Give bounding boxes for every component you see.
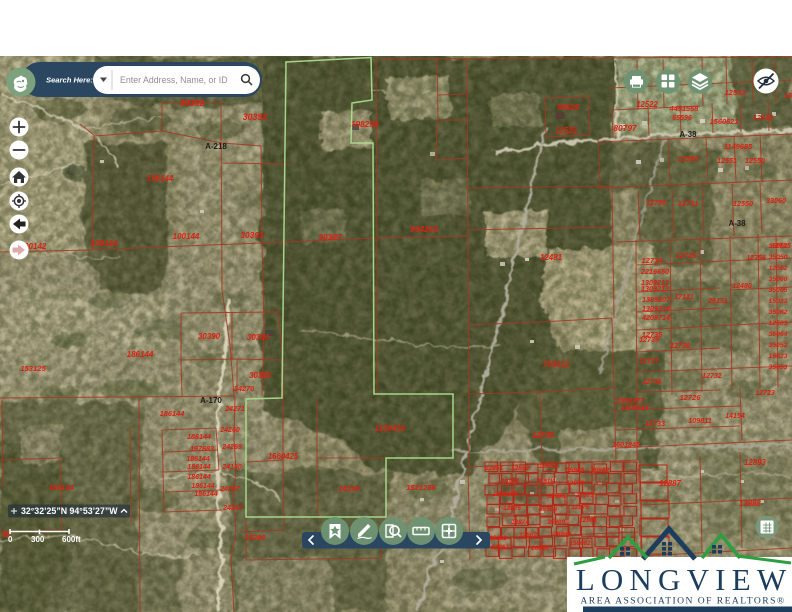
svg-text:25282: 25282 bbox=[488, 535, 507, 542]
svg-text:12861: 12861 bbox=[491, 544, 509, 551]
svg-text:0: 0 bbox=[8, 535, 13, 544]
svg-text:12738: 12738 bbox=[670, 341, 690, 350]
svg-text:35060: 35060 bbox=[769, 276, 788, 283]
svg-text:12535: 12535 bbox=[753, 113, 774, 122]
svg-text:600ft: 600ft bbox=[62, 535, 81, 544]
svg-text:35988: 35988 bbox=[539, 506, 557, 513]
svg-text:24271: 24271 bbox=[224, 404, 245, 413]
svg-text:1309213: 1309213 bbox=[641, 284, 669, 293]
svg-text:12754: 12754 bbox=[746, 255, 766, 262]
svg-text:16982: 16982 bbox=[591, 467, 610, 474]
svg-text:1521256: 1521256 bbox=[406, 483, 436, 492]
svg-text:AREA ASSOCIATION OF REALTOR: AREA ASSOCIATION OF REALTORS® bbox=[580, 596, 785, 607]
svg-text:26131: 26131 bbox=[707, 298, 728, 305]
svg-text:12876: 12876 bbox=[571, 504, 589, 511]
svg-text:186144: 186144 bbox=[127, 350, 154, 359]
svg-text:158682: 158682 bbox=[569, 540, 591, 547]
svg-text:1149685: 1149685 bbox=[724, 142, 753, 151]
svg-text:1560621: 1560621 bbox=[710, 117, 739, 126]
svg-text:12522: 12522 bbox=[636, 100, 658, 109]
svg-text:186144: 186144 bbox=[186, 456, 209, 463]
svg-text:4451558: 4451558 bbox=[669, 104, 700, 113]
svg-text:30392: 30392 bbox=[243, 112, 268, 122]
svg-text:1309214: 1309214 bbox=[642, 304, 670, 313]
svg-text:12502: 12502 bbox=[769, 265, 788, 272]
svg-text:12550: 12550 bbox=[745, 156, 765, 165]
svg-text:12733: 12733 bbox=[645, 419, 665, 428]
svg-text:17121: 17121 bbox=[674, 294, 694, 301]
svg-text:12862: 12862 bbox=[519, 532, 537, 539]
svg-text:24264: 24264 bbox=[337, 484, 360, 493]
svg-text:A-218: A-218 bbox=[205, 142, 227, 151]
svg-text:12740: 12740 bbox=[532, 431, 555, 440]
svg-text:708322: 708322 bbox=[543, 360, 570, 369]
svg-text:12881: 12881 bbox=[579, 517, 597, 524]
svg-text:1558377: 1558377 bbox=[616, 396, 645, 405]
svg-text:12879: 12879 bbox=[576, 492, 594, 499]
svg-text:35985: 35985 bbox=[566, 467, 585, 474]
svg-text:12551: 12551 bbox=[717, 156, 737, 165]
svg-text:12887: 12887 bbox=[659, 479, 681, 488]
svg-text:24269: 24269 bbox=[221, 444, 242, 451]
svg-text:4209714: 4209714 bbox=[641, 313, 670, 322]
svg-text:12853: 12853 bbox=[501, 478, 519, 485]
svg-text:12550: 12550 bbox=[733, 199, 753, 208]
svg-text:35052: 35052 bbox=[769, 342, 788, 349]
svg-text:12730: 12730 bbox=[646, 198, 667, 207]
svg-text:12736: 12736 bbox=[642, 379, 662, 386]
svg-text:24260: 24260 bbox=[219, 427, 240, 434]
svg-text:A98298: A98298 bbox=[349, 120, 379, 129]
svg-text:Search Here:: Search Here: bbox=[46, 76, 93, 85]
svg-text:2216650: 2216650 bbox=[640, 267, 669, 276]
svg-text:12851: 12851 bbox=[485, 465, 504, 472]
svg-text:186144: 186144 bbox=[187, 432, 211, 441]
svg-text:35918: 35918 bbox=[536, 478, 554, 485]
svg-text:24267: 24267 bbox=[219, 486, 241, 493]
svg-text:12852: 12852 bbox=[511, 465, 530, 472]
svg-text:35989: 35989 bbox=[547, 519, 565, 526]
svg-text:Enter Address, Name, or ID: Enter Address, Name, or ID bbox=[120, 75, 228, 85]
svg-text:14154: 14154 bbox=[725, 413, 745, 420]
svg-text:300: 300 bbox=[31, 535, 45, 544]
svg-text:30391: 30391 bbox=[240, 230, 264, 240]
svg-text:35062: 35062 bbox=[769, 309, 788, 316]
svg-text:197683: 197683 bbox=[190, 444, 214, 453]
svg-text:15023: 15023 bbox=[769, 353, 788, 360]
svg-text:12893: 12893 bbox=[744, 458, 766, 467]
svg-text:12503: 12503 bbox=[769, 320, 788, 327]
svg-text:24270: 24270 bbox=[233, 384, 255, 393]
svg-text:186144: 186144 bbox=[147, 174, 174, 183]
svg-text:155: 155 bbox=[784, 91, 792, 100]
svg-text:35986: 35986 bbox=[547, 493, 565, 500]
svg-text:12481: 12481 bbox=[540, 253, 563, 262]
svg-text:12726: 12726 bbox=[679, 393, 701, 402]
svg-text:994263: 994263 bbox=[410, 224, 438, 234]
svg-text:12874: 12874 bbox=[511, 519, 529, 526]
svg-text:35064: 35064 bbox=[769, 331, 788, 338]
svg-text:12737: 12737 bbox=[639, 358, 660, 365]
svg-text:35050: 35050 bbox=[769, 254, 788, 261]
svg-text:26998: 26998 bbox=[530, 545, 549, 552]
svg-text:12878: 12878 bbox=[566, 480, 584, 487]
svg-text:35053: 35053 bbox=[769, 364, 788, 371]
svg-text:186144: 186144 bbox=[187, 474, 210, 481]
svg-text:33060: 33060 bbox=[766, 196, 786, 205]
svg-text:109811: 109811 bbox=[688, 416, 711, 425]
svg-text:100144: 100144 bbox=[91, 239, 118, 248]
svg-text:35065: 35065 bbox=[769, 287, 788, 294]
svg-text:24130: 24130 bbox=[221, 464, 242, 471]
svg-text:12732: 12732 bbox=[702, 373, 722, 380]
svg-text:13888: 13888 bbox=[739, 499, 761, 508]
svg-text:30390: 30390 bbox=[198, 332, 221, 341]
svg-text:1601845: 1601845 bbox=[612, 440, 641, 449]
svg-text:1660425: 1660425 bbox=[268, 452, 299, 461]
svg-text:12556: 12556 bbox=[677, 154, 699, 163]
svg-text:12739: 12739 bbox=[639, 337, 659, 344]
svg-text:1586560: 1586560 bbox=[493, 491, 518, 498]
svg-text:32°32’25”N 94°53’27”W: 32°32’25”N 94°53’27”W bbox=[21, 506, 118, 516]
svg-text:A-170: A-170 bbox=[200, 396, 222, 405]
svg-text:1309207: 1309207 bbox=[642, 295, 671, 304]
svg-text:186144: 186144 bbox=[187, 464, 210, 471]
svg-text:26999: 26999 bbox=[552, 531, 571, 538]
svg-text:100144: 100144 bbox=[173, 232, 200, 241]
svg-text:12528: 12528 bbox=[555, 126, 577, 135]
svg-text:186144: 186144 bbox=[191, 483, 214, 490]
svg-text:12723: 12723 bbox=[755, 390, 775, 397]
svg-text:59529: 59529 bbox=[557, 103, 579, 112]
svg-text:15023: 15023 bbox=[769, 298, 788, 305]
svg-text:LONGVIEW: LONGVIEW bbox=[576, 562, 792, 597]
svg-text:12728: 12728 bbox=[675, 251, 697, 260]
svg-text:30390: 30390 bbox=[247, 333, 270, 342]
svg-text:80797: 80797 bbox=[613, 123, 637, 133]
svg-text:65596: 65596 bbox=[672, 115, 692, 122]
svg-text:12480: 12480 bbox=[732, 283, 752, 290]
svg-text:A-38: A-38 bbox=[729, 219, 747, 228]
svg-text:12533: 12533 bbox=[724, 88, 746, 97]
svg-text:30387: 30387 bbox=[318, 232, 342, 242]
svg-text:153125: 153125 bbox=[20, 364, 46, 373]
svg-text:25286: 25286 bbox=[244, 533, 266, 542]
svg-text:A-38: A-38 bbox=[680, 130, 698, 139]
svg-text:186144: 186144 bbox=[160, 409, 185, 418]
svg-text:186144: 186144 bbox=[48, 483, 74, 492]
svg-text:12734: 12734 bbox=[641, 256, 663, 265]
svg-text:30388: 30388 bbox=[249, 371, 271, 380]
svg-text:186144: 186144 bbox=[194, 491, 217, 498]
svg-text:12875: 12875 bbox=[503, 505, 521, 512]
svg-text:35051: 35051 bbox=[769, 243, 788, 250]
svg-text:1601943: 1601943 bbox=[621, 405, 648, 412]
svg-text:12854: 12854 bbox=[539, 463, 558, 470]
svg-text:24287: 24287 bbox=[222, 503, 244, 512]
svg-text:1160436: 1160436 bbox=[375, 424, 406, 433]
svg-text:12731: 12731 bbox=[678, 199, 699, 208]
svg-text:30392: 30392 bbox=[180, 98, 205, 108]
